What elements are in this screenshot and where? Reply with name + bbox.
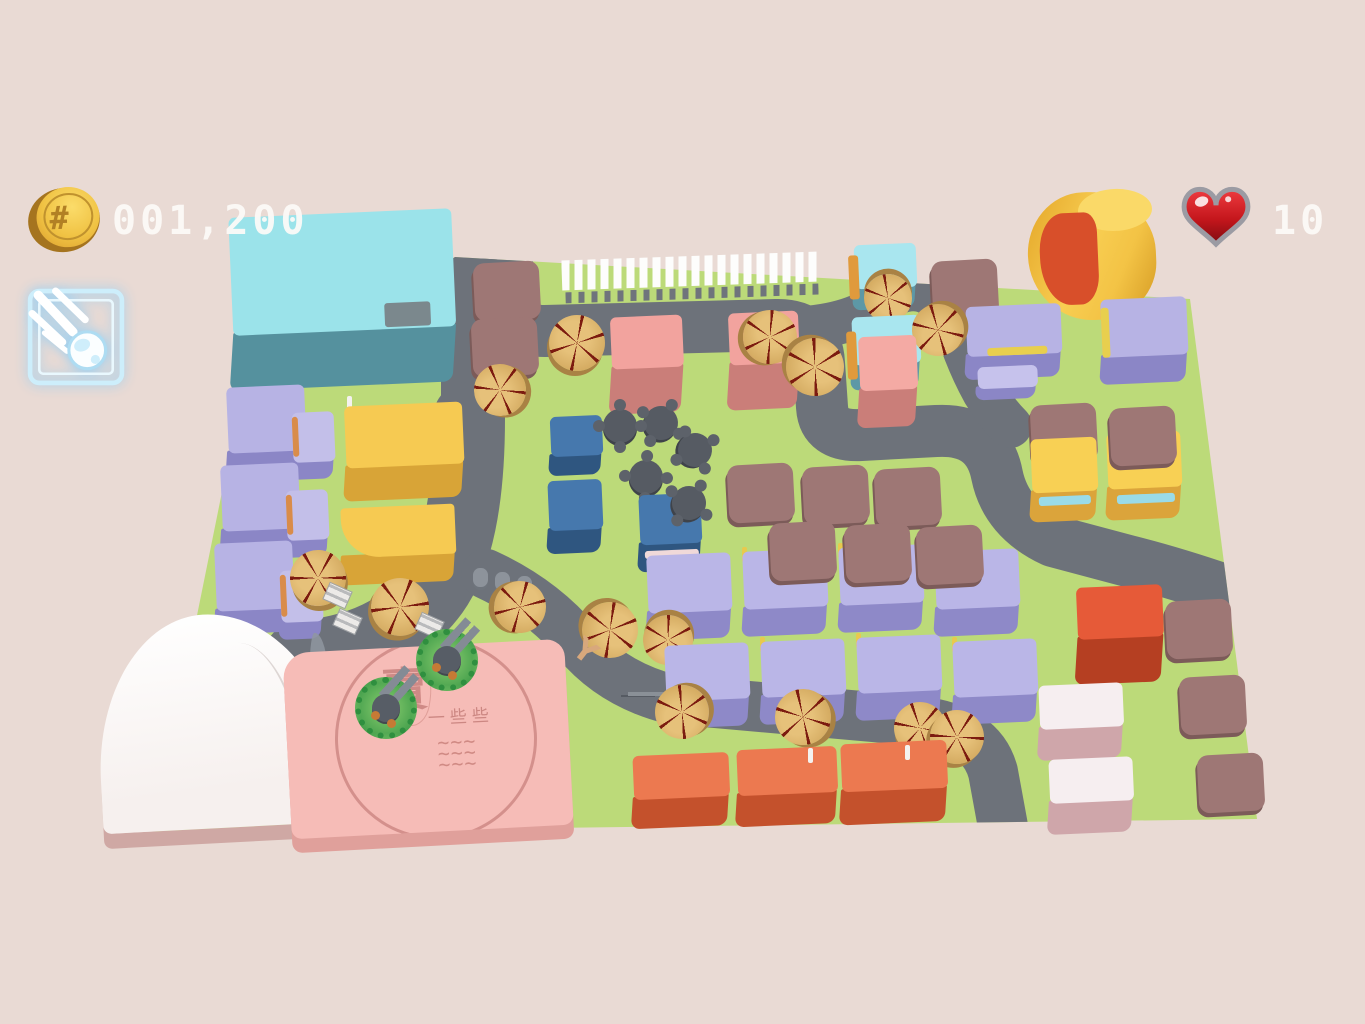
stamp-text-small: 一些些 — [427, 701, 494, 729]
blue-building — [547, 479, 604, 557]
tree — [549, 315, 605, 371]
lives-count: 10 — [1272, 198, 1328, 244]
white-building-top — [1048, 756, 1134, 804]
orange-building — [736, 746, 839, 830]
game-screen: 賣 一些些 ~~~~~~~~~ Y # 001,200 — [0, 0, 1365, 1024]
build-pad[interactable] — [727, 462, 796, 523]
turret-ammo — [448, 671, 457, 680]
white-post — [905, 745, 910, 760]
build-pad[interactable] — [1179, 674, 1248, 735]
heart-icon — [1178, 183, 1254, 255]
defense-turret[interactable] — [416, 629, 478, 691]
blue-building-top — [547, 479, 603, 531]
stamp-waves: ~~~~~~~~~ — [437, 735, 478, 770]
lavender-building — [1100, 296, 1190, 388]
table-chairs — [653, 415, 669, 431]
yellow-shop-top — [1030, 437, 1098, 494]
red-building — [1076, 584, 1166, 688]
build-pad[interactable] — [1197, 752, 1266, 813]
build-pad[interactable] — [802, 464, 871, 525]
orange-building — [632, 752, 731, 832]
lavender-building-top — [1100, 296, 1188, 358]
pink-building-side — [857, 386, 917, 429]
build-pad[interactable] — [874, 466, 943, 527]
orange-building-top — [840, 740, 948, 793]
coin-count: 001,200 — [112, 198, 309, 244]
white-building-top — [1038, 682, 1124, 730]
meteor-ability-button[interactable] — [25, 286, 127, 388]
red-building-top — [1076, 584, 1164, 640]
build-pad[interactable] — [769, 520, 838, 581]
orange-building-top — [736, 746, 838, 796]
picket-fence — [561, 252, 820, 307]
lavender-building — [977, 365, 1039, 404]
turret-ammo — [371, 711, 380, 720]
yellow-building — [340, 504, 457, 589]
cyan-shop-accent — [846, 331, 858, 379]
blue-building-top — [550, 415, 604, 457]
orange-building — [840, 740, 950, 829]
pink-building-top — [610, 314, 684, 369]
defense-turret[interactable] — [355, 677, 417, 739]
supply-crate — [332, 608, 363, 636]
cyan-building-accent — [384, 301, 431, 327]
lavender-building-top — [646, 552, 732, 614]
turret-ammo — [432, 663, 441, 672]
orange-building-top — [632, 752, 730, 800]
white-post — [808, 748, 813, 763]
build-pad[interactable] — [844, 522, 913, 583]
game-map: 賣 一些些 ~~~~~~~~~ Y — [0, 0, 1365, 1024]
blue-building — [550, 415, 605, 479]
pink-building-side — [609, 363, 684, 414]
lavender-building-top — [856, 634, 942, 694]
pink-building — [858, 335, 920, 431]
build-pad[interactable] — [1165, 598, 1234, 659]
build-pad[interactable] — [1109, 405, 1178, 466]
bench-rail — [628, 692, 664, 696]
patio-table — [628, 459, 664, 495]
yellow-shop — [1030, 437, 1100, 526]
white-building — [1038, 682, 1125, 764]
turret-ammo — [387, 719, 396, 728]
pink-building — [610, 314, 686, 417]
meteor-icon — [32, 291, 105, 369]
cyan-shop-accent — [848, 255, 860, 299]
yellow-building-top — [344, 401, 465, 468]
table-chairs — [681, 495, 698, 512]
lavender-building-top — [977, 365, 1038, 390]
pink-building-top — [858, 335, 918, 391]
build-pad[interactable] — [473, 260, 542, 321]
trash-bin — [473, 568, 488, 587]
lavender-building-top — [952, 638, 1038, 698]
table-chairs — [640, 471, 653, 484]
yellow-building — [344, 401, 466, 504]
white-building — [1048, 756, 1135, 838]
patio-table — [672, 427, 718, 473]
build-pad[interactable] — [916, 524, 985, 585]
table-chairs — [687, 442, 703, 458]
patio-table — [603, 409, 637, 443]
red-building-side — [1075, 633, 1164, 685]
coin-symbol: # — [49, 199, 70, 238]
table-chairs — [614, 420, 626, 432]
yellow-building-top — [340, 504, 456, 559]
